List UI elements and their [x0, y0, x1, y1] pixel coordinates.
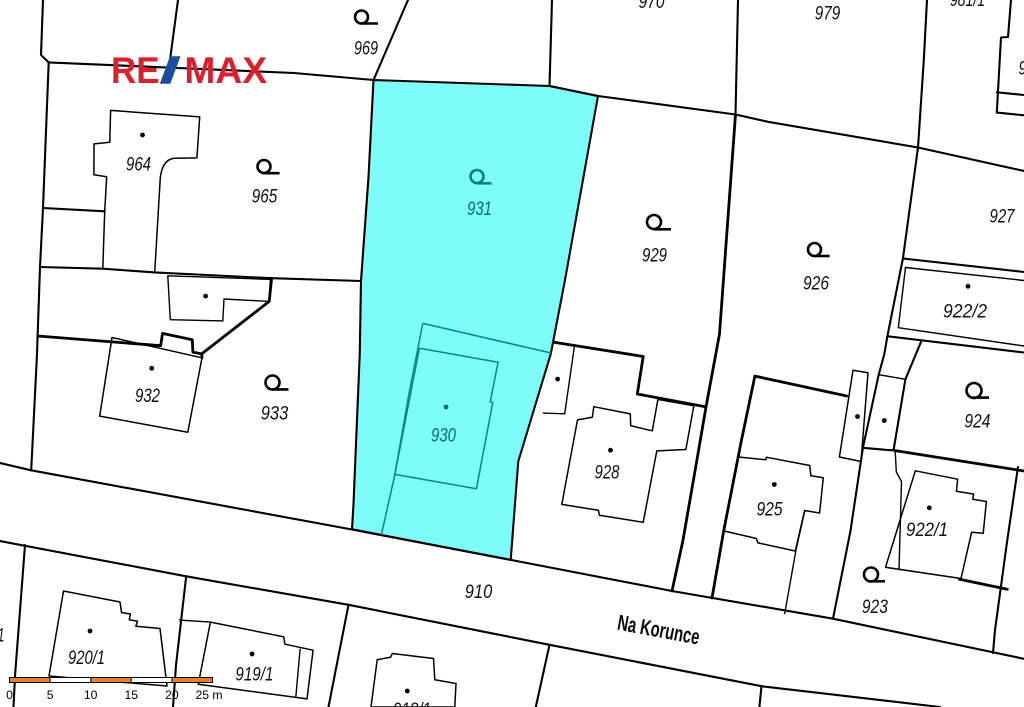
svg-text:RE: RE [111, 50, 160, 91]
svg-text:969: 969 [354, 37, 378, 59]
svg-text:926: 926 [803, 272, 829, 294]
svg-text:25 m: 25 m [195, 688, 222, 702]
svg-text:15: 15 [125, 688, 139, 702]
svg-text:925: 925 [757, 498, 783, 520]
svg-text:922/2: 922/2 [943, 300, 987, 322]
svg-text:20: 20 [165, 688, 179, 702]
svg-text:918/1: 918/1 [393, 699, 431, 707]
svg-text:965: 965 [252, 186, 278, 208]
svg-text:10: 10 [84, 688, 98, 702]
svg-text:964: 964 [126, 153, 151, 175]
svg-text:930: 930 [431, 424, 456, 446]
svg-text:929: 929 [642, 244, 667, 266]
svg-text:1: 1 [0, 625, 5, 647]
svg-text:931: 931 [467, 198, 492, 220]
svg-text:5: 5 [47, 688, 54, 702]
svg-text:98: 98 [1019, 58, 1024, 80]
svg-text:927: 927 [990, 206, 1016, 228]
svg-text:924: 924 [964, 411, 990, 433]
svg-text:933: 933 [261, 403, 289, 425]
svg-text:920/1: 920/1 [68, 647, 105, 669]
svg-text:932: 932 [135, 385, 160, 407]
svg-text:910: 910 [465, 581, 493, 603]
svg-text:922/1: 922/1 [906, 519, 948, 541]
svg-text:970: 970 [639, 0, 665, 13]
svg-text:919/1: 919/1 [235, 664, 273, 686]
svg-text:979: 979 [815, 2, 841, 24]
svg-text:MAX: MAX [184, 50, 267, 91]
svg-text:928: 928 [595, 461, 620, 483]
svg-text:923: 923 [862, 596, 888, 618]
svg-text:981/1: 981/1 [950, 0, 985, 11]
svg-text:0: 0 [6, 688, 13, 702]
